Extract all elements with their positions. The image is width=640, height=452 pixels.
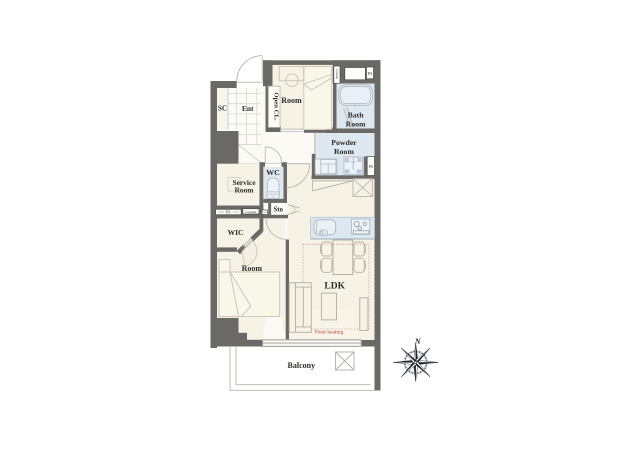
- svg-text:Counter: Counter: [335, 69, 339, 80]
- svg-text:Balcony: Balcony: [288, 361, 316, 370]
- svg-text:Powder: Powder: [331, 138, 357, 147]
- svg-text:Bath: Bath: [348, 110, 365, 119]
- svg-text:WC: WC: [266, 168, 280, 177]
- svg-text:N: N: [414, 337, 422, 346]
- svg-text:Room: Room: [334, 147, 354, 156]
- svg-text:Floor heating: Floor heating: [314, 330, 343, 336]
- svg-text:PS: PS: [368, 71, 372, 76]
- svg-text:Ent: Ent: [242, 104, 254, 113]
- svg-text:PS: PS: [369, 164, 373, 169]
- svg-text:Room: Room: [281, 96, 302, 105]
- svg-text:Counter: Counter: [245, 210, 257, 214]
- svg-text:PS: PS: [226, 210, 230, 215]
- svg-text:WIC: WIC: [228, 228, 244, 237]
- svg-text:Room: Room: [235, 186, 255, 195]
- svg-text:Room: Room: [346, 119, 366, 128]
- svg-text:Sto: Sto: [273, 206, 283, 214]
- svg-text:Room: Room: [242, 264, 263, 273]
- svg-text:SC: SC: [218, 105, 227, 113]
- svg-text:LDK: LDK: [324, 281, 345, 291]
- svg-text:Open CL.: Open CL.: [272, 92, 279, 121]
